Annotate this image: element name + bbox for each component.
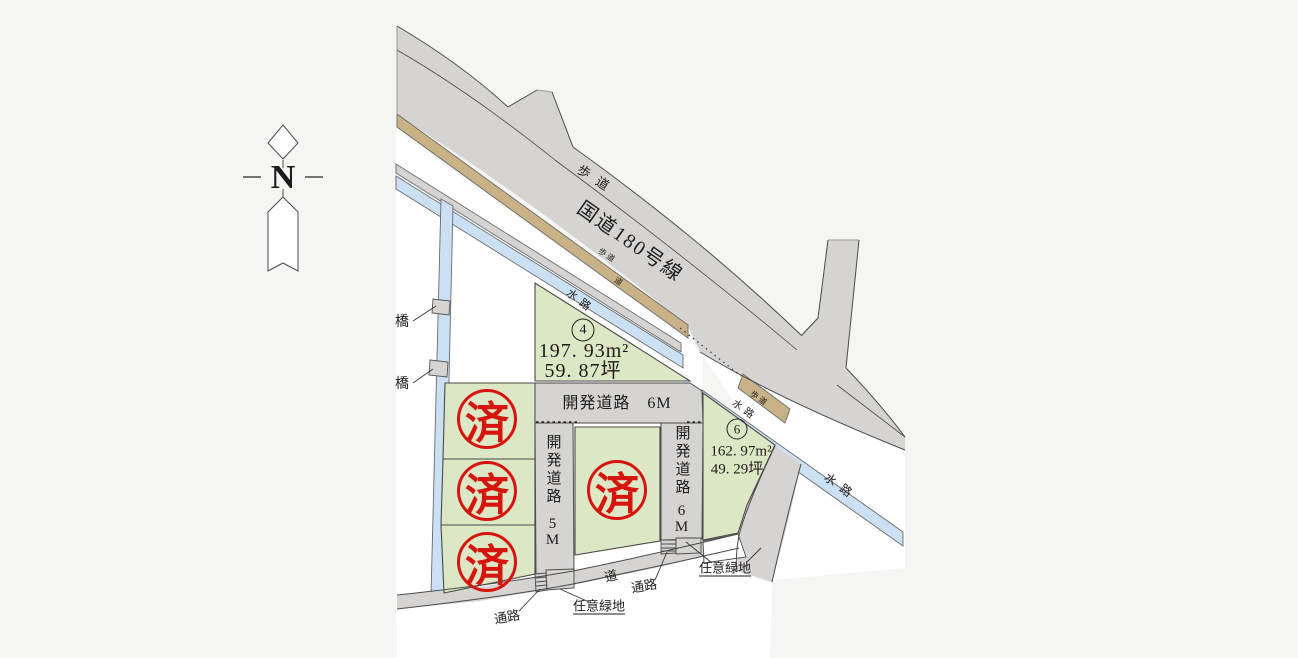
lot4-area: 197. 93m²: [539, 341, 630, 361]
dev-road-5m-width-label: 5M: [545, 516, 560, 548]
dev-road-6m-name-label: 開発道路: [674, 425, 689, 497]
lot6-number-circle: 6: [727, 419, 748, 440]
map-drawing: [0, 0, 1298, 658]
bridge-2: [429, 360, 448, 377]
sold-stamp-center: 済: [587, 460, 647, 520]
lot4-number-circle: 4: [572, 319, 595, 342]
sold-stamp-2: 済: [457, 461, 517, 521]
lot4-tsubo: 59. 87坪: [545, 361, 622, 381]
compass-diamond: [268, 125, 298, 159]
lot6-number: 6: [734, 421, 741, 437]
dev-road-6m-horizontal-label: 開発道路 6M: [562, 396, 671, 412]
green-space-label-right: 任意緑地: [699, 562, 751, 577]
land-plot-map: N 歩道 国道180号線 歩道 道 水路 歩道 水路 水路 橋 橋 4 197.…: [0, 0, 1298, 658]
bottom-road-label: 道: [603, 568, 619, 584]
sold-stamp-3: 済: [457, 532, 517, 592]
compass-north-label: N: [271, 161, 296, 195]
lot6-area: 162. 97m²: [710, 445, 771, 460]
bridge-label-1: 橋: [395, 316, 409, 330]
north-compass: [243, 125, 323, 271]
sold-stamp-1: 済: [457, 389, 517, 449]
dev-road-5m-name-label: 開発道路: [545, 434, 560, 506]
compass-arrow: [268, 197, 298, 271]
lot6-tsubo: 49. 29坪: [711, 463, 764, 478]
green-space-label-center: 任意緑地: [573, 600, 625, 615]
bridge-label-2: 橋: [395, 378, 409, 392]
dev-road-6m-width-label: 6M: [674, 503, 689, 535]
lot4-number: 4: [580, 322, 587, 338]
